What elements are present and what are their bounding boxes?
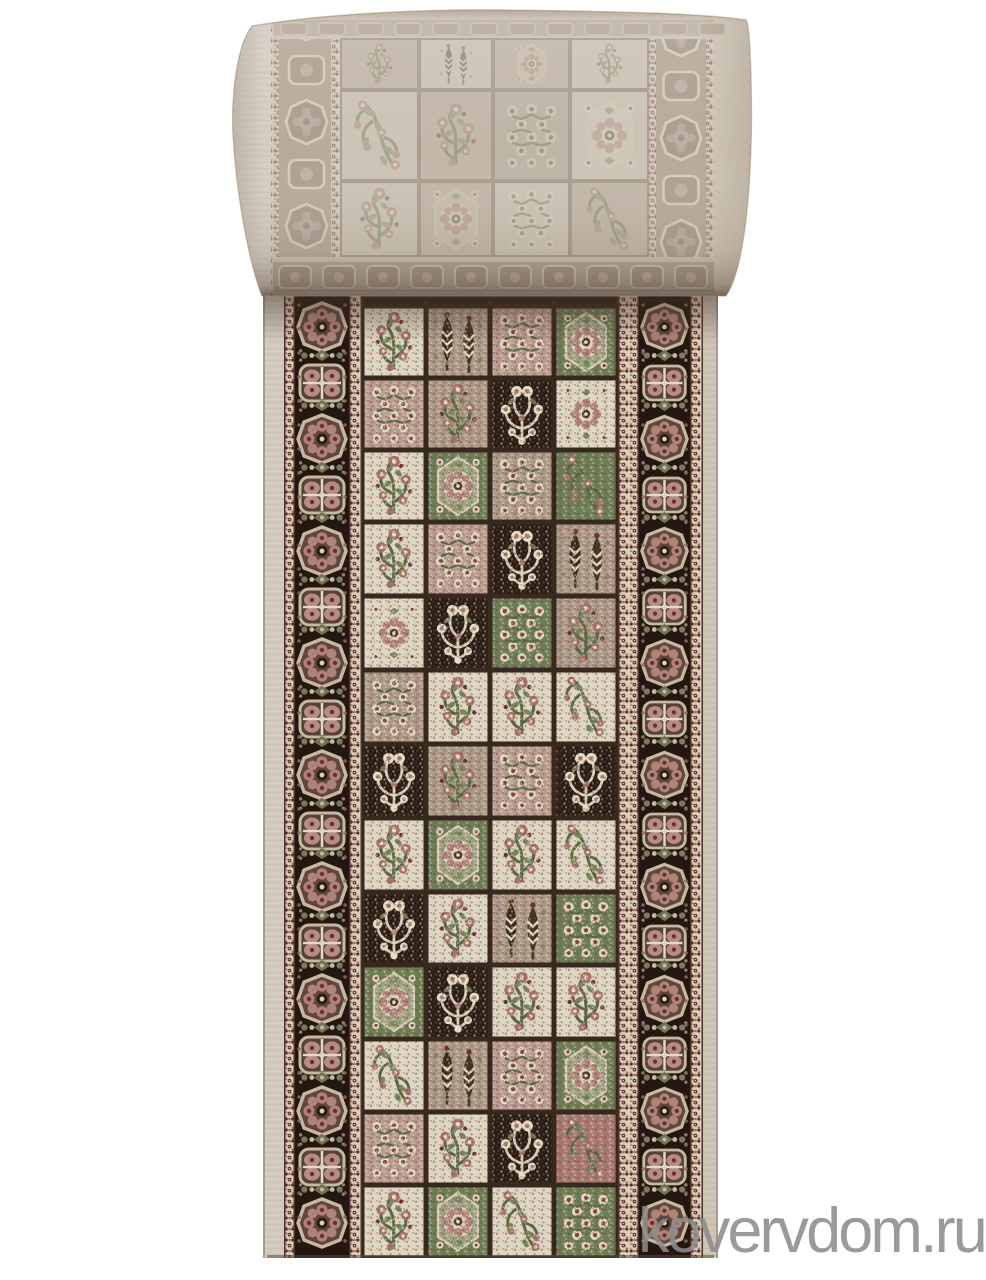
svg-text:kovervdom.ru: kovervdom.ru	[638, 1196, 985, 1266]
